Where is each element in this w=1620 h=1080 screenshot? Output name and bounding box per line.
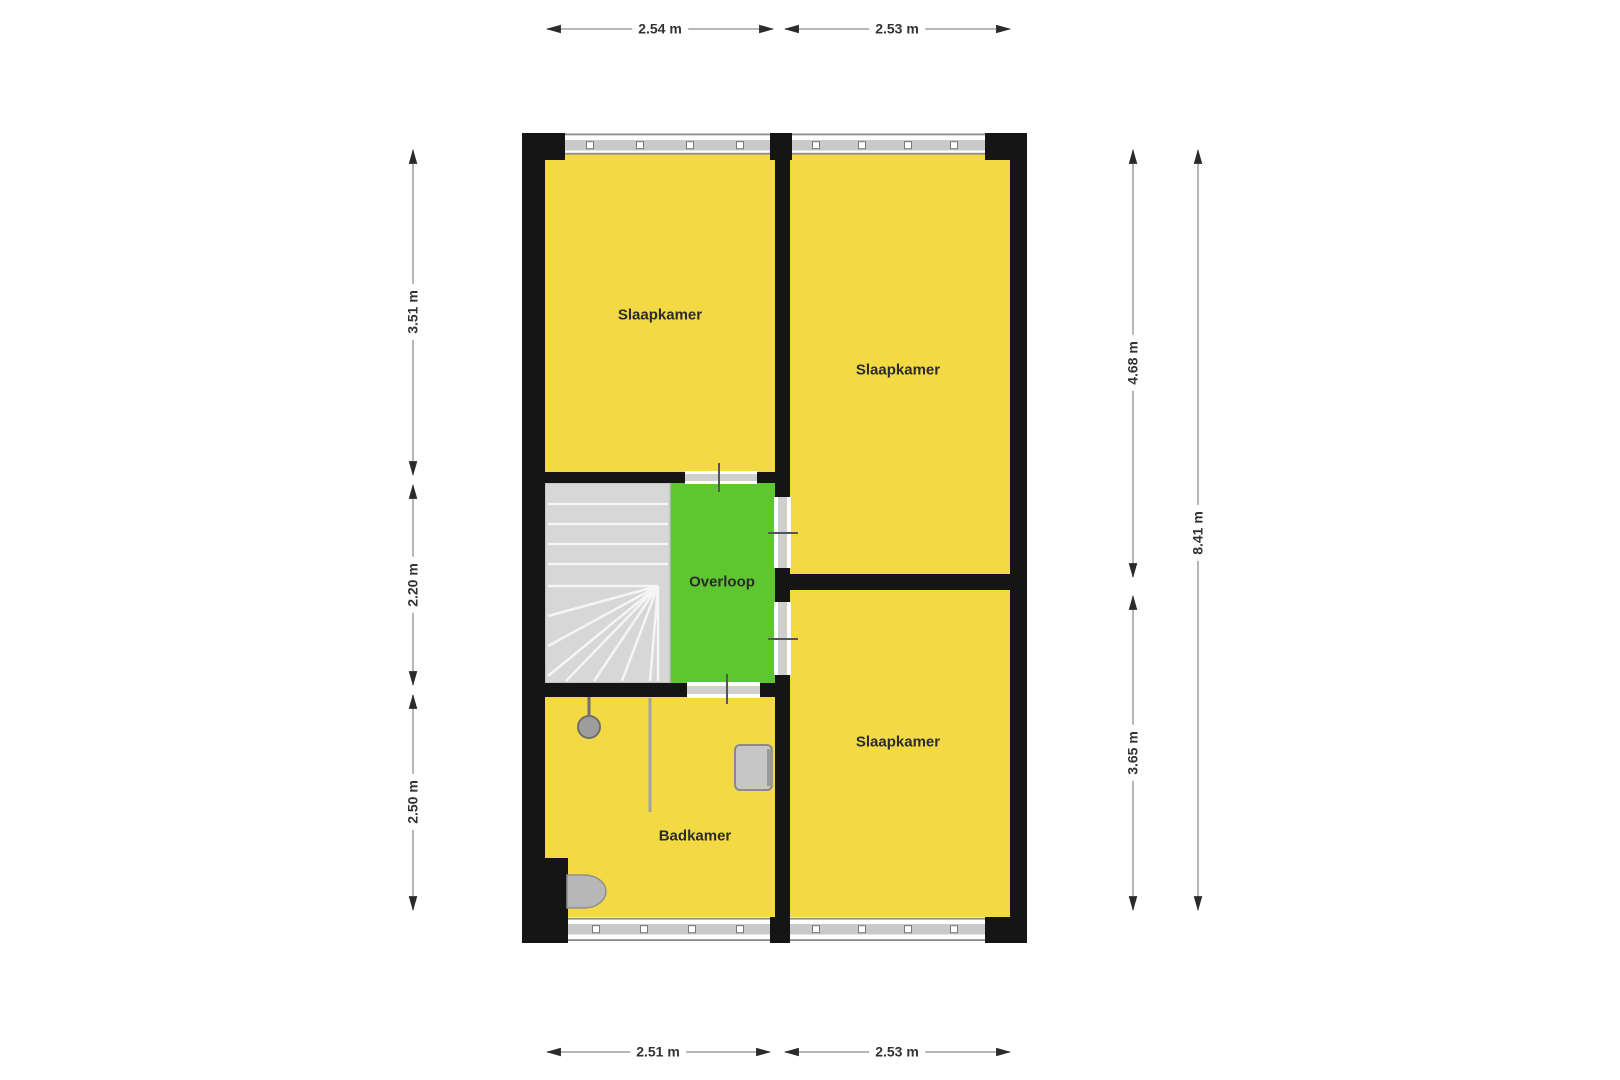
floorplan-drawing xyxy=(0,0,1620,1080)
dim-left-2: 2.20 m xyxy=(405,557,422,613)
dim-top-left: 2.54 m xyxy=(632,21,688,38)
sink-icon xyxy=(735,745,773,790)
window-bottom-left xyxy=(568,918,770,941)
room-slaapkamer-bottom-right xyxy=(790,590,1010,917)
window-top-right xyxy=(792,134,985,155)
toilet-icon xyxy=(567,875,606,908)
window-top-left xyxy=(565,134,770,155)
dim-left-1: 3.51 m xyxy=(405,284,422,340)
room-label-overloop: Overloop xyxy=(689,574,755,591)
floorplan-canvas: Slaapkamer Slaapkamer Slaapkamer Overloo… xyxy=(0,0,1620,1080)
dim-top-right: 2.53 m xyxy=(869,21,925,38)
dim-right-inner-1: 4.68 m xyxy=(1125,335,1142,391)
dim-bottom-right: 2.53 m xyxy=(869,1044,925,1061)
room-label-slaapkamer-top-right: Slaapkamer xyxy=(856,362,940,379)
dim-left-3: 2.50 m xyxy=(405,774,422,830)
stairs-winder-icon xyxy=(545,483,670,683)
dim-bottom-left: 2.51 m xyxy=(630,1044,686,1061)
room-label-badkamer: Badkamer xyxy=(659,828,732,845)
room-label-slaapkamer-top-left: Slaapkamer xyxy=(618,307,702,324)
room-label-slaapkamer-bottom-right: Slaapkamer xyxy=(856,734,940,751)
window-bottom-right xyxy=(790,918,985,941)
dim-right-outer: 8.41 m xyxy=(1190,505,1207,561)
dim-right-inner-2: 3.65 m xyxy=(1125,725,1142,781)
